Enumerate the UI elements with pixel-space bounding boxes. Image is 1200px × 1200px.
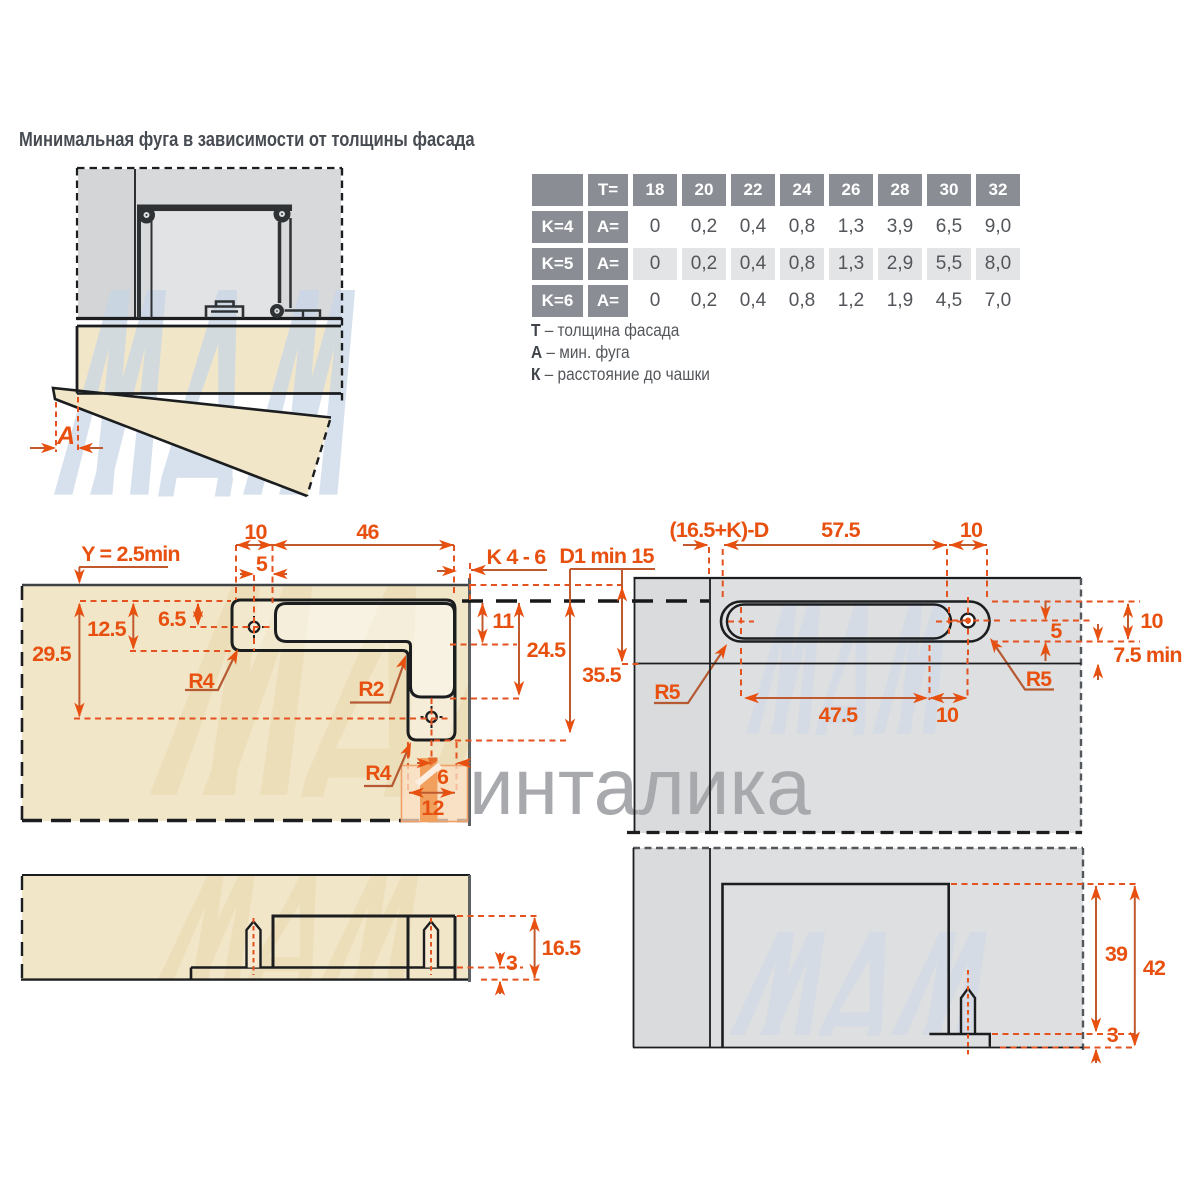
svg-text:K 4 - 6: K 4 - 6 <box>487 545 547 569</box>
svg-text:10: 10 <box>960 518 983 542</box>
svg-text:3: 3 <box>1107 1023 1119 1047</box>
svg-text:R5: R5 <box>1026 668 1052 691</box>
svg-text:12.5: 12.5 <box>87 617 126 641</box>
svg-text:7.5 min: 7.5 min <box>1113 643 1182 667</box>
svg-text:5: 5 <box>1050 619 1062 643</box>
svg-text:57.5: 57.5 <box>821 518 860 542</box>
svg-text:Y = 2.5min: Y = 2.5min <box>81 542 180 566</box>
svg-text:11: 11 <box>492 609 514 633</box>
svg-text:16.5: 16.5 <box>542 936 581 960</box>
svg-text:42: 42 <box>1143 956 1166 980</box>
svg-text:10: 10 <box>1140 609 1163 633</box>
svg-text:D1 min 15: D1 min 15 <box>559 544 654 568</box>
svg-text:5: 5 <box>256 552 268 576</box>
svg-text:10: 10 <box>244 520 267 544</box>
svg-text:46: 46 <box>356 520 379 544</box>
svg-text:R4: R4 <box>365 762 391 785</box>
svg-text:47.5: 47.5 <box>819 703 858 727</box>
svg-text:6.5: 6.5 <box>158 607 186 631</box>
svg-text:R4: R4 <box>188 670 214 693</box>
svg-text:10: 10 <box>936 703 959 727</box>
svg-text:(16.5+K)-D: (16.5+K)-D <box>670 518 769 542</box>
svg-text:инталика: инталика <box>469 742 811 831</box>
svg-text:35.5: 35.5 <box>582 663 621 687</box>
svg-text:3: 3 <box>506 951 518 975</box>
svg-text:A: A <box>56 422 75 450</box>
svg-text:12: 12 <box>421 796 444 820</box>
svg-text:R2: R2 <box>358 678 383 701</box>
svg-text:39: 39 <box>1105 942 1128 966</box>
svg-text:6: 6 <box>437 765 449 789</box>
svg-text:29.5: 29.5 <box>32 642 71 666</box>
svg-text:24.5: 24.5 <box>527 638 566 662</box>
svg-text:R5: R5 <box>654 681 680 704</box>
